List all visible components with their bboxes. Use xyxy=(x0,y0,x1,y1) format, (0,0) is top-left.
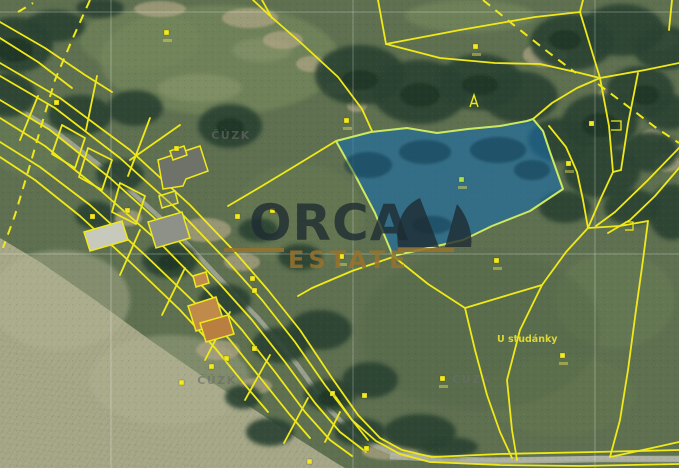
marker-number-smudge xyxy=(458,186,467,189)
parcel-marker xyxy=(364,446,369,451)
highlight-tree-shadow xyxy=(470,137,526,163)
parcel-marker xyxy=(224,356,229,361)
parcel-marker xyxy=(209,364,214,369)
highlight-tree-shadow xyxy=(344,152,392,178)
place-label: U studánky xyxy=(497,334,558,345)
parcel-marker xyxy=(174,146,179,151)
parcel-marker xyxy=(307,459,312,464)
brand-watermark-text: ESTATE xyxy=(288,246,410,274)
parcel-marker xyxy=(589,121,594,126)
marker-number-smudge xyxy=(493,267,502,270)
parcel-marker xyxy=(164,30,169,35)
place-label-layer: U studánky xyxy=(497,334,558,345)
parcel-marker xyxy=(459,177,464,182)
parcel-marker xyxy=(473,44,478,49)
parcel-marker xyxy=(440,376,445,381)
cuzk-watermark: ČÚZK xyxy=(197,374,237,387)
parcel-marker xyxy=(252,346,257,351)
parcel-marker xyxy=(250,276,255,281)
parcel-marker xyxy=(90,214,95,219)
parcel-marker xyxy=(235,214,240,219)
parcel-marker xyxy=(125,208,130,213)
parcel-marker xyxy=(252,288,257,293)
parcel-marker xyxy=(560,353,565,358)
parcel-marker xyxy=(344,118,349,123)
marker-number-smudge xyxy=(163,39,172,42)
parcel-marker xyxy=(362,393,367,398)
cuzk-watermark: ČÚZK xyxy=(211,129,251,142)
marker-number-smudge xyxy=(439,385,448,388)
parcel-marker xyxy=(494,258,499,263)
parcel-marker xyxy=(566,161,571,166)
marker-number-smudge xyxy=(565,170,574,173)
marker-number-smudge xyxy=(559,362,568,365)
highlight-tree-shadow xyxy=(514,160,550,180)
parcel-marker xyxy=(54,100,59,105)
brand-watermark-text: ORCA xyxy=(249,194,409,252)
highlight-tree-shadow xyxy=(399,140,451,164)
cadastral-map[interactable]: ČÚZKČÚZKČÚZKČÚZKORCAESTATEU studánky xyxy=(0,0,679,468)
map-canvas[interactable]: ČÚZKČÚZKČÚZKČÚZKORCAESTATEU studánky xyxy=(0,0,679,468)
marker-number-smudge xyxy=(472,53,481,56)
parcel-marker xyxy=(179,380,184,385)
cuzk-watermark: ČÚZK xyxy=(452,373,492,386)
parcel-marker xyxy=(330,391,335,396)
marker-number-smudge xyxy=(343,127,352,130)
